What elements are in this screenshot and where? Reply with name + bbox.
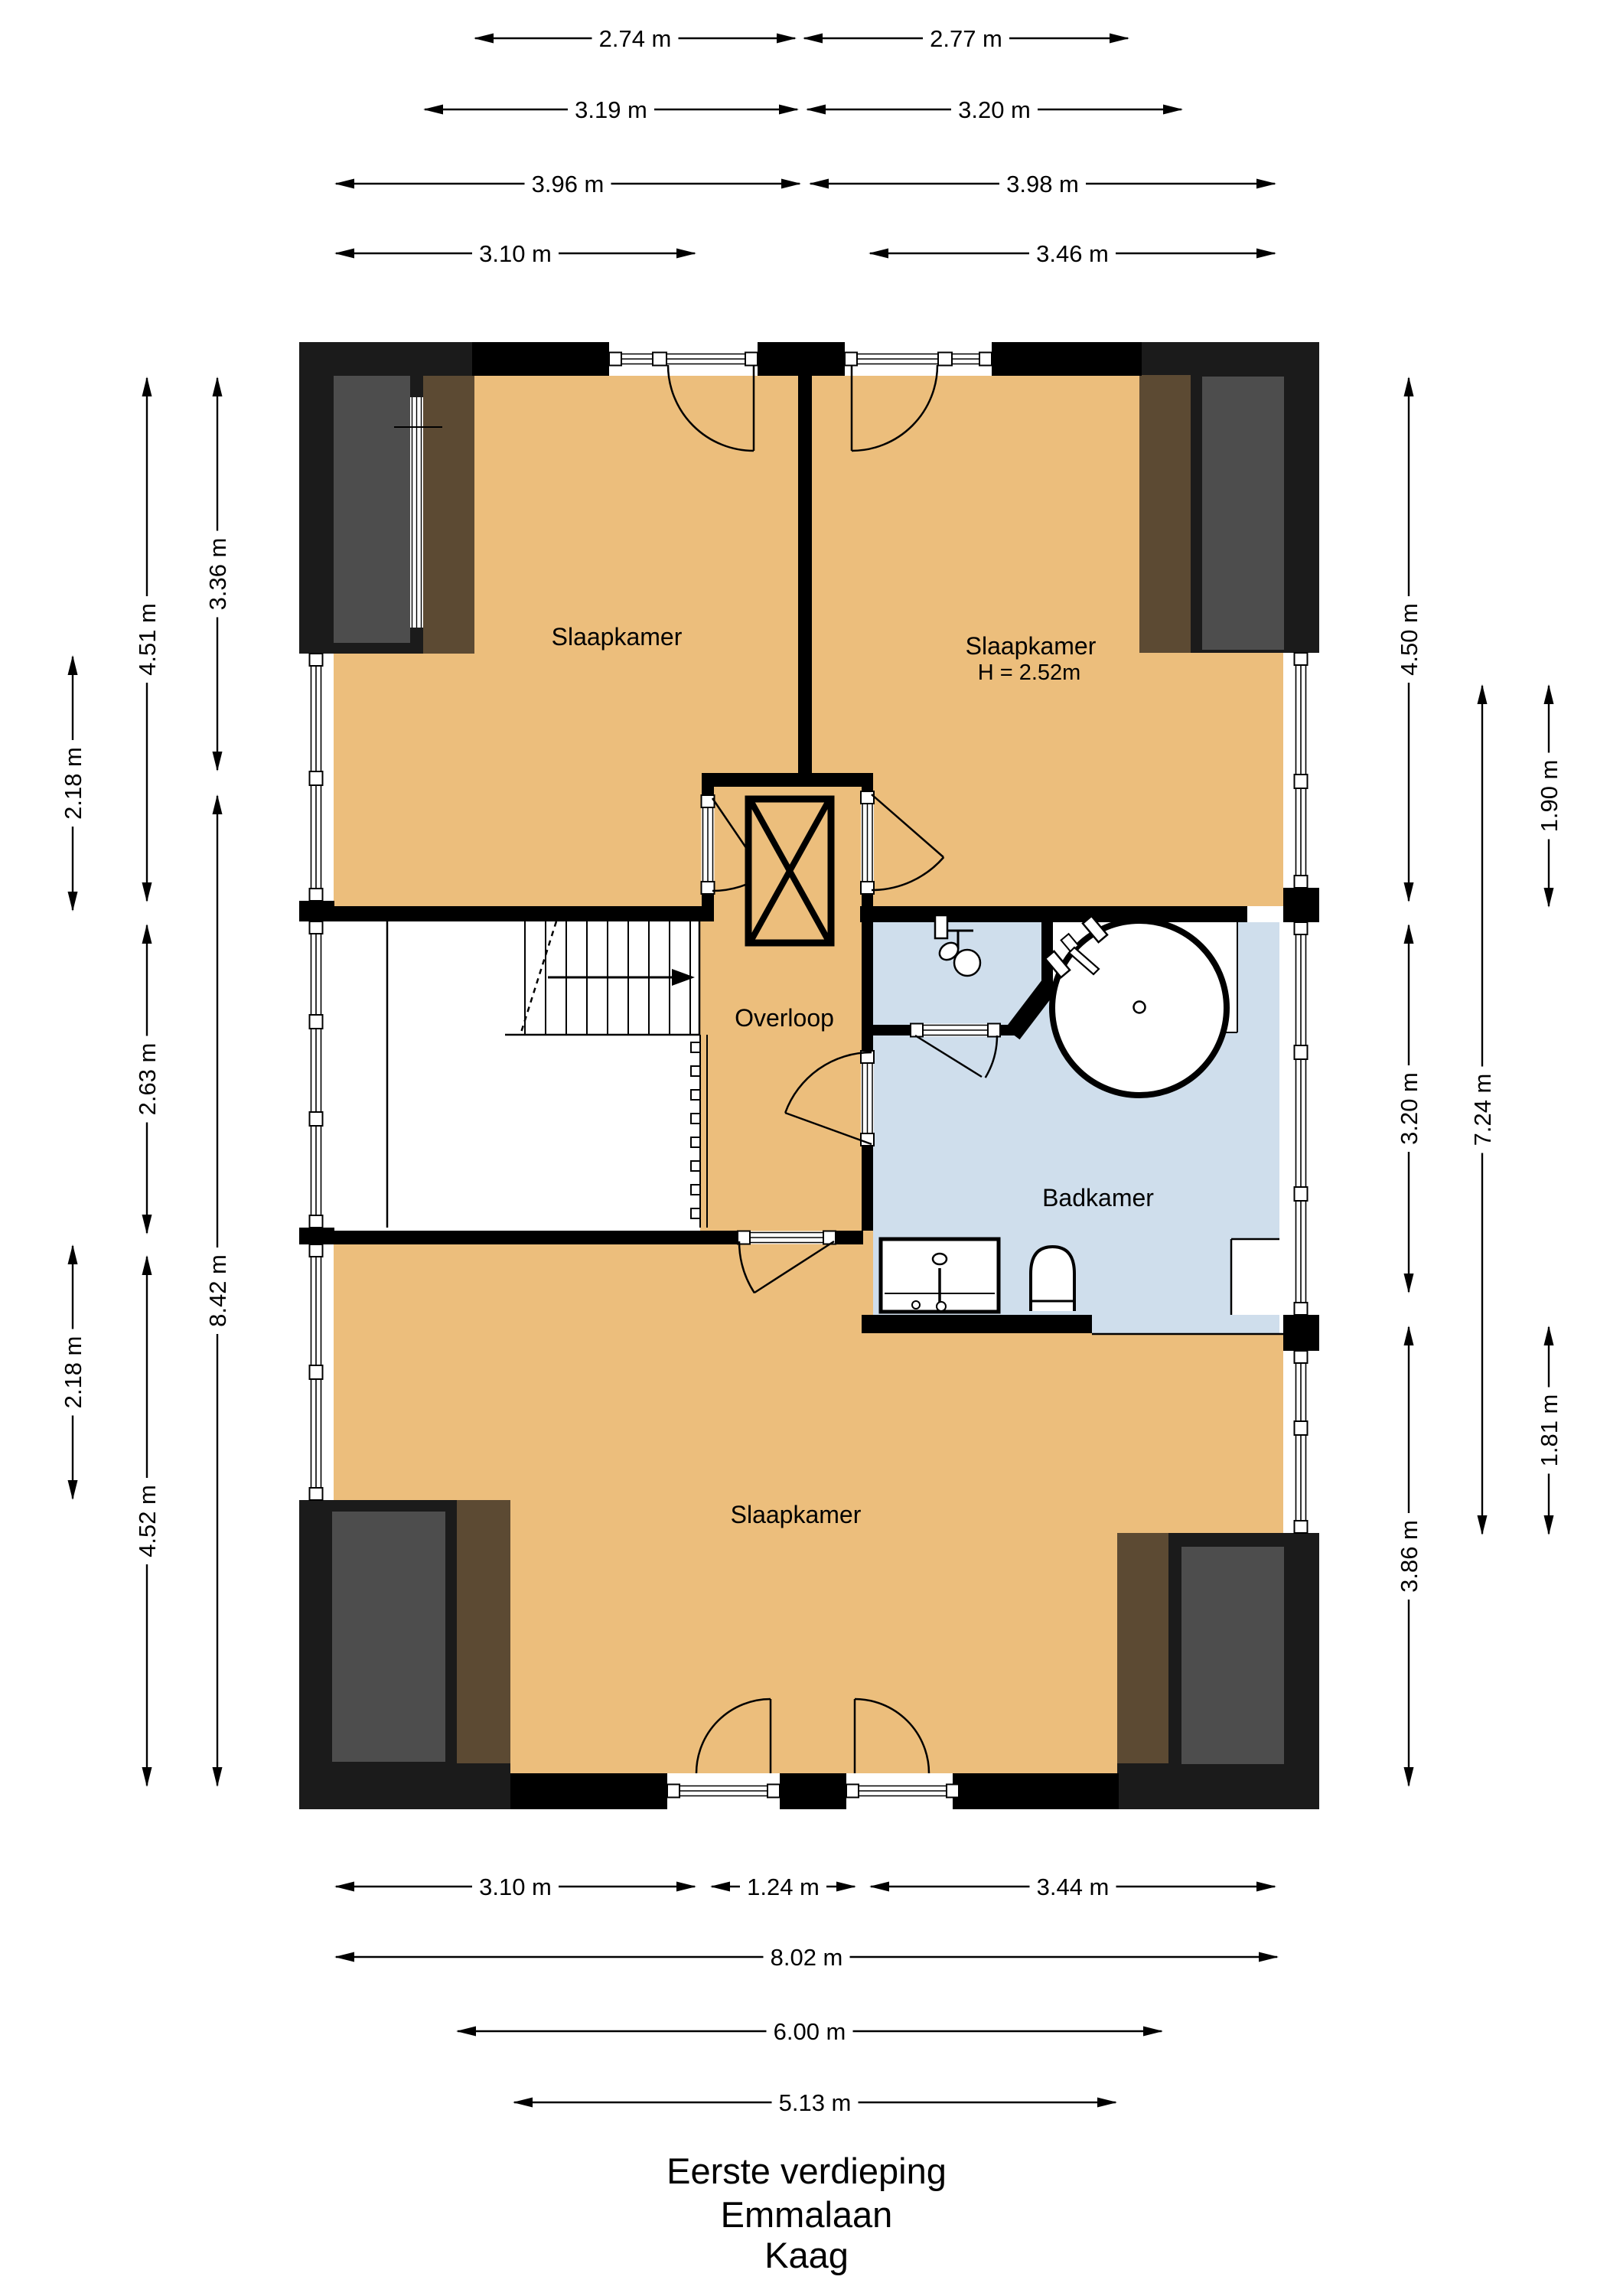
- svg-text:3.96 m: 3.96 m: [532, 171, 605, 197]
- svg-text:2.63 m: 2.63 m: [134, 1043, 161, 1116]
- svg-text:3.46 m: 3.46 m: [1036, 240, 1109, 267]
- svg-text:4.52 m: 4.52 m: [134, 1485, 161, 1557]
- svg-text:Slaapkamer: Slaapkamer: [966, 632, 1097, 660]
- svg-text:Eerste verdieping: Eerste verdieping: [666, 2151, 947, 2191]
- svg-text:2.18 m: 2.18 m: [60, 747, 86, 820]
- svg-text:Kaag: Kaag: [764, 2235, 849, 2275]
- svg-text:2.77 m: 2.77 m: [930, 25, 1002, 52]
- svg-text:8.42 m: 8.42 m: [204, 1254, 231, 1327]
- svg-text:Slaapkamer: Slaapkamer: [552, 623, 683, 651]
- svg-text:7.24 m: 7.24 m: [1469, 1074, 1496, 1146]
- svg-text:3.98 m: 3.98 m: [1006, 171, 1079, 197]
- svg-text:5.13 m: 5.13 m: [779, 2089, 852, 2116]
- svg-text:Badkamer: Badkamer: [1042, 1184, 1154, 1212]
- svg-text:H = 2.52m: H = 2.52m: [978, 660, 1081, 685]
- svg-text:2.74 m: 2.74 m: [599, 25, 672, 52]
- svg-text:3.20 m: 3.20 m: [1396, 1072, 1423, 1145]
- svg-text:1.90 m: 1.90 m: [1536, 760, 1563, 833]
- svg-text:3.86 m: 3.86 m: [1396, 1520, 1423, 1593]
- svg-text:Emmalaan: Emmalaan: [721, 2194, 893, 2235]
- svg-text:3.20 m: 3.20 m: [958, 96, 1031, 123]
- svg-text:2.18 m: 2.18 m: [60, 1336, 86, 1409]
- svg-text:4.50 m: 4.50 m: [1396, 603, 1423, 676]
- svg-text:1.81 m: 1.81 m: [1536, 1394, 1563, 1467]
- svg-text:1.24 m: 1.24 m: [747, 1874, 820, 1900]
- svg-text:6.00 m: 6.00 m: [774, 2018, 846, 2045]
- svg-text:3.19 m: 3.19 m: [575, 96, 647, 123]
- svg-text:4.51 m: 4.51 m: [134, 603, 161, 676]
- svg-text:8.02 m: 8.02 m: [771, 1944, 843, 1971]
- svg-text:3.36 m: 3.36 m: [204, 538, 231, 611]
- svg-text:Slaapkamer: Slaapkamer: [731, 1501, 862, 1528]
- svg-text:3.44 m: 3.44 m: [1037, 1874, 1110, 1900]
- svg-text:3.10 m: 3.10 m: [479, 240, 552, 267]
- svg-text:3.10 m: 3.10 m: [479, 1874, 552, 1900]
- svg-text:Overloop: Overloop: [735, 1004, 834, 1032]
